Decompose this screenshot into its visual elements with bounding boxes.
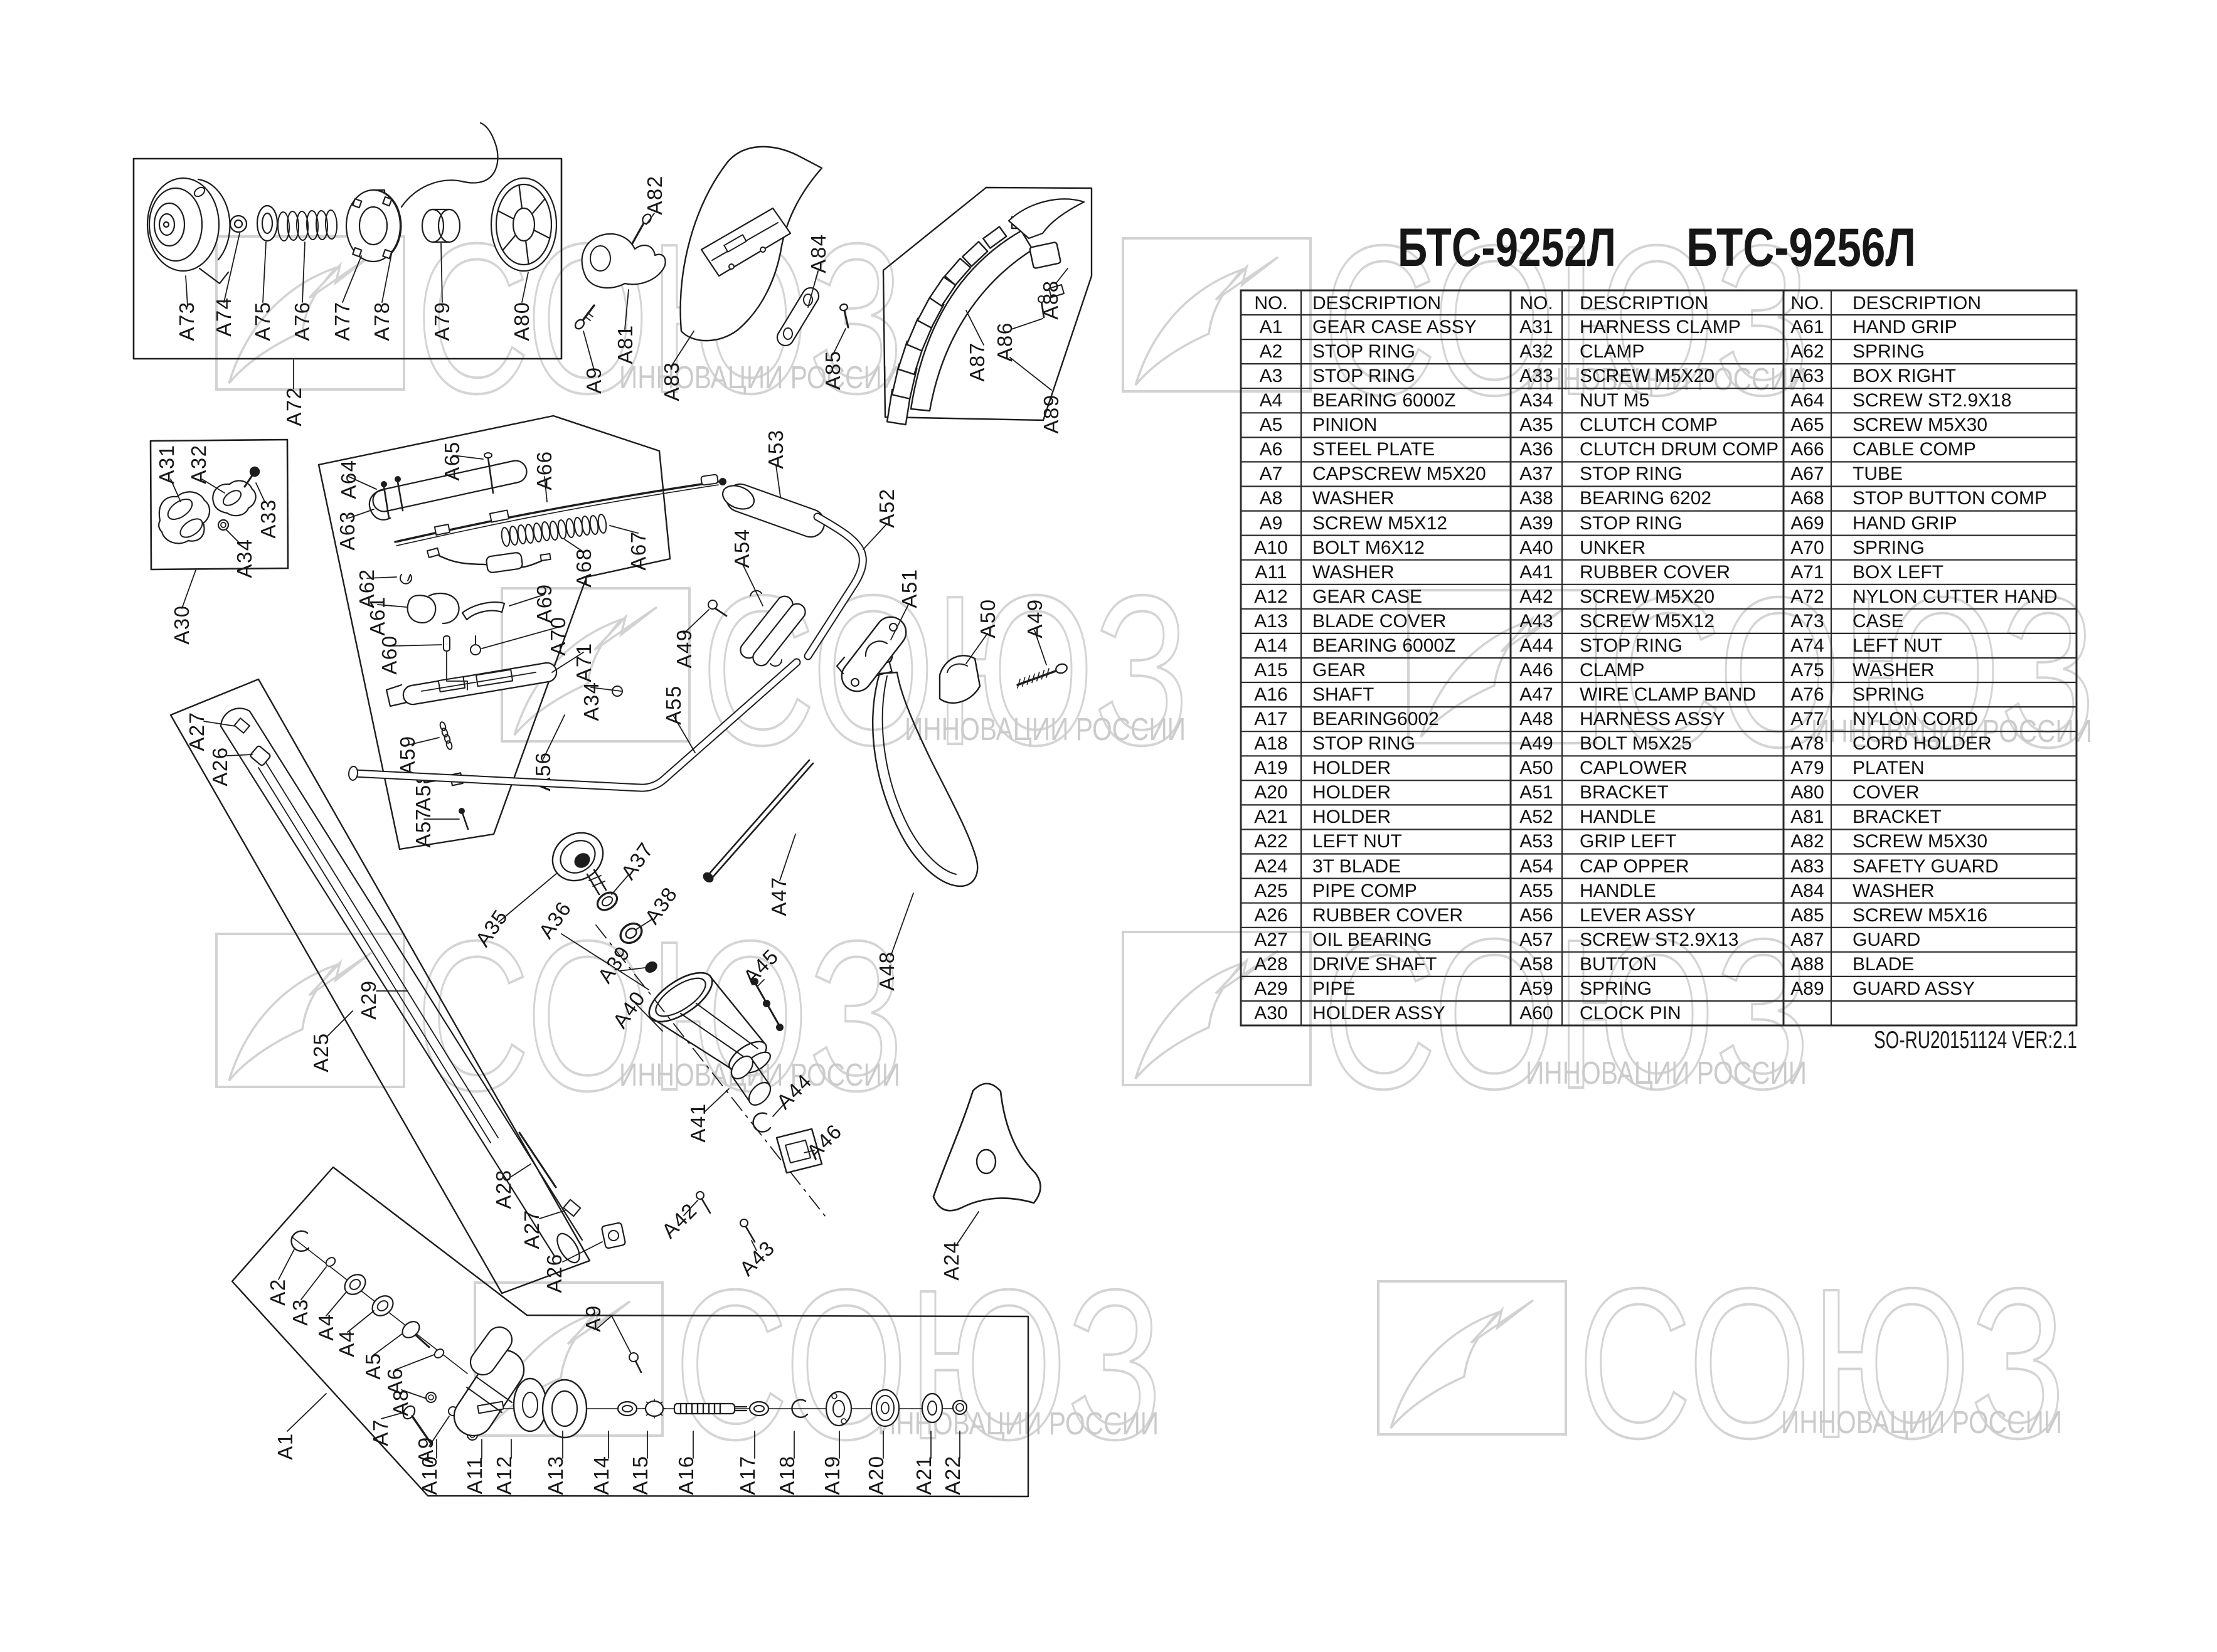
svg-text:A50: A50 xyxy=(1519,758,1553,778)
svg-text:CLAMP: CLAMP xyxy=(1580,660,1644,680)
svg-text:A81: A81 xyxy=(1790,807,1824,827)
svg-text:A27: A27 xyxy=(185,711,208,751)
svg-text:A50: A50 xyxy=(976,598,999,638)
svg-text:GEAR CASE ASSY: GEAR CASE ASSY xyxy=(1312,317,1477,337)
svg-text:BOLT M6X12: BOLT M6X12 xyxy=(1312,537,1425,558)
svg-text:STOP RING: STOP RING xyxy=(1580,513,1683,534)
svg-text:A10: A10 xyxy=(1254,537,1287,558)
svg-text:A2: A2 xyxy=(266,1278,289,1305)
svg-text:RUBBER COVER: RUBBER COVER xyxy=(1580,562,1730,583)
svg-text:A22: A22 xyxy=(941,1455,964,1495)
svg-text:A42: A42 xyxy=(657,1198,701,1242)
svg-text:A71: A71 xyxy=(572,642,595,682)
svg-text:A24: A24 xyxy=(1254,856,1287,877)
svg-text:A72: A72 xyxy=(282,386,306,426)
svg-text:A37: A37 xyxy=(616,838,658,884)
svg-text:A14: A14 xyxy=(1254,635,1287,656)
svg-text:NUT M5: NUT M5 xyxy=(1580,390,1649,411)
svg-text:A64: A64 xyxy=(337,459,360,499)
svg-text:A41: A41 xyxy=(1519,562,1553,583)
svg-text:A40: A40 xyxy=(1519,537,1553,558)
svg-text:A4: A4 xyxy=(335,1330,358,1357)
svg-text:A19: A19 xyxy=(821,1455,844,1495)
svg-text:A7: A7 xyxy=(369,1419,392,1446)
svg-text:A15: A15 xyxy=(1254,660,1287,680)
svg-text:A9: A9 xyxy=(1260,513,1283,534)
svg-text:A61: A61 xyxy=(1790,317,1824,337)
svg-text:CABLE COMP: CABLE COMP xyxy=(1853,439,1976,460)
svg-text:БТС-9252Л: БТС-9252Л xyxy=(1398,218,1616,278)
svg-text:A9: A9 xyxy=(582,1305,605,1332)
svg-text:A78: A78 xyxy=(370,301,393,341)
svg-text:GUARD ASSY: GUARD ASSY xyxy=(1853,978,1975,999)
svg-text:STOP RING: STOP RING xyxy=(1312,341,1415,362)
svg-text:A55: A55 xyxy=(662,685,685,724)
svg-text:CLAMP: CLAMP xyxy=(1580,341,1644,362)
svg-text:SCREW M5X20: SCREW M5X20 xyxy=(1580,586,1715,607)
svg-text:A36: A36 xyxy=(1519,439,1553,460)
svg-text:A34: A34 xyxy=(233,538,256,578)
svg-text:A48: A48 xyxy=(875,951,898,990)
svg-text:A27: A27 xyxy=(1254,929,1287,950)
svg-text:A66: A66 xyxy=(533,450,556,490)
svg-text:A16: A16 xyxy=(674,1455,698,1495)
svg-text:A30: A30 xyxy=(170,605,193,644)
svg-text:A53: A53 xyxy=(1519,831,1553,852)
svg-text:A65: A65 xyxy=(440,441,464,480)
svg-text:BRACKET: BRACKET xyxy=(1580,782,1669,803)
svg-text:A62: A62 xyxy=(1790,341,1824,362)
svg-text:STOP RING: STOP RING xyxy=(1312,733,1415,754)
svg-text:A3: A3 xyxy=(1260,366,1283,386)
svg-text:A75: A75 xyxy=(1790,660,1824,680)
svg-text:STEEL PLATE: STEEL PLATE xyxy=(1312,439,1435,460)
svg-text:A69: A69 xyxy=(1790,513,1824,534)
svg-text:A7: A7 xyxy=(1260,463,1283,484)
svg-text:BOX RIGHT: BOX RIGHT xyxy=(1853,366,1956,386)
svg-text:BOLT M5X25: BOLT M5X25 xyxy=(1580,733,1692,754)
svg-text:SPRING: SPRING xyxy=(1853,537,1925,558)
svg-text:A86: A86 xyxy=(993,322,1016,361)
svg-text:TUBE: TUBE xyxy=(1853,463,1903,484)
svg-text:A63: A63 xyxy=(336,511,359,550)
svg-text:A9: A9 xyxy=(414,1436,437,1463)
svg-text:A66: A66 xyxy=(1790,439,1824,460)
svg-text:BLADE: BLADE xyxy=(1853,954,1914,975)
svg-text:A52: A52 xyxy=(1519,807,1553,827)
svg-text:A52: A52 xyxy=(875,488,898,527)
svg-text:A11: A11 xyxy=(463,1456,486,1495)
svg-text:GEAR: GEAR xyxy=(1312,660,1366,680)
svg-text:A58: A58 xyxy=(1519,954,1553,975)
svg-text:SO-RU20151124 VER:2.1: SO-RU20151124 VER:2.1 xyxy=(1874,1027,2077,1054)
svg-text:A5: A5 xyxy=(1260,415,1283,435)
svg-text:OIL BEARING: OIL BEARING xyxy=(1312,929,1432,950)
svg-text:A32: A32 xyxy=(187,444,210,484)
svg-text:A16: A16 xyxy=(1254,684,1287,705)
svg-text:A13: A13 xyxy=(1254,611,1287,632)
svg-text:SCREW M5X30: SCREW M5X30 xyxy=(1853,415,1987,435)
svg-text:WASHER: WASHER xyxy=(1853,660,1935,680)
svg-text:A18: A18 xyxy=(1254,733,1287,754)
svg-text:A88: A88 xyxy=(1790,954,1824,975)
svg-text:HANDLE: HANDLE xyxy=(1580,807,1656,827)
svg-text:STOP RING: STOP RING xyxy=(1312,366,1415,386)
svg-text:A51: A51 xyxy=(1519,782,1553,803)
svg-text:NYLON CORD: NYLON CORD xyxy=(1853,709,1978,729)
svg-text:BEARING6002: BEARING6002 xyxy=(1312,709,1439,729)
svg-text:BOX LEFT: BOX LEFT xyxy=(1853,562,1943,583)
svg-text:A26: A26 xyxy=(208,746,231,786)
svg-text:A21: A21 xyxy=(912,1455,935,1495)
svg-text:A6: A6 xyxy=(1260,439,1283,460)
svg-text:A84: A84 xyxy=(807,233,830,273)
svg-text:A59: A59 xyxy=(396,735,419,775)
svg-text:A78: A78 xyxy=(1790,733,1824,754)
svg-text:HARNESS ASSY: HARNESS ASSY xyxy=(1580,709,1725,729)
svg-text:DESCRIPTION: DESCRIPTION xyxy=(1312,293,1441,314)
svg-text:A51: A51 xyxy=(898,568,921,608)
svg-text:A17: A17 xyxy=(736,1455,759,1495)
svg-text:CAPLOWER: CAPLOWER xyxy=(1580,758,1688,778)
svg-text:A55: A55 xyxy=(1519,881,1553,901)
svg-text:NYLON CUTTER HAND: NYLON CUTTER HAND xyxy=(1853,586,2058,607)
svg-text:WASHER: WASHER xyxy=(1312,562,1395,583)
svg-text:A33: A33 xyxy=(1519,366,1553,386)
svg-text:A35: A35 xyxy=(1519,415,1553,435)
svg-text:CAPSCREW M5X20: CAPSCREW M5X20 xyxy=(1312,463,1486,484)
svg-text:A8: A8 xyxy=(1260,488,1283,509)
svg-text:HOLDER: HOLDER xyxy=(1312,782,1391,803)
svg-text:A88: A88 xyxy=(1039,280,1062,319)
svg-text:A80: A80 xyxy=(1790,782,1824,803)
svg-text:A54: A54 xyxy=(730,528,753,568)
svg-text:HAND GRIP: HAND GRIP xyxy=(1853,317,1957,337)
svg-text:WIRE CLAMP BAND: WIRE CLAMP BAND xyxy=(1580,684,1756,705)
svg-text:BUTTON: BUTTON xyxy=(1580,954,1657,975)
svg-text:SPRING: SPRING xyxy=(1853,341,1925,362)
svg-text:A70: A70 xyxy=(546,616,570,655)
svg-text:A29: A29 xyxy=(1254,978,1287,999)
svg-text:A25: A25 xyxy=(1254,881,1287,901)
svg-text:A22: A22 xyxy=(1254,831,1287,852)
svg-text:A19: A19 xyxy=(1254,758,1287,778)
svg-text:A12: A12 xyxy=(492,1455,516,1495)
svg-text:A39: A39 xyxy=(1519,513,1553,534)
svg-text:GEAR CASE: GEAR CASE xyxy=(1312,586,1422,607)
svg-text:A24: A24 xyxy=(940,1241,963,1280)
svg-text:A17: A17 xyxy=(1254,709,1287,729)
svg-text:A81: A81 xyxy=(614,324,637,364)
svg-text:SHAFT: SHAFT xyxy=(1312,684,1374,705)
svg-text:SPRING: SPRING xyxy=(1853,684,1925,705)
svg-text:A42: A42 xyxy=(1519,586,1553,607)
svg-text:A87: A87 xyxy=(965,342,989,381)
svg-text:A64: A64 xyxy=(1790,390,1824,411)
svg-text:A34: A34 xyxy=(1519,390,1553,411)
svg-text:BRACKET: BRACKET xyxy=(1853,807,1942,827)
svg-text:CLUTCH DRUM COMP: CLUTCH DRUM COMP xyxy=(1580,439,1778,460)
svg-text:A74: A74 xyxy=(1790,635,1824,656)
svg-text:CLOCK PIN: CLOCK PIN xyxy=(1580,1003,1681,1024)
svg-text:A3: A3 xyxy=(289,1298,312,1325)
svg-text:LEVER ASSY: LEVER ASSY xyxy=(1580,905,1696,926)
svg-text:CLUTCH COMP: CLUTCH COMP xyxy=(1580,415,1718,435)
svg-text:A89: A89 xyxy=(1790,978,1824,999)
svg-text:HANDLE: HANDLE xyxy=(1580,881,1656,901)
svg-text:A65: A65 xyxy=(1790,415,1824,435)
svg-text:A68: A68 xyxy=(572,548,595,587)
svg-text:A1: A1 xyxy=(274,1432,297,1459)
svg-text:HOLDER: HOLDER xyxy=(1312,807,1391,827)
svg-text:A31: A31 xyxy=(1519,317,1553,337)
svg-text:A85: A85 xyxy=(821,350,844,389)
svg-text:A31: A31 xyxy=(155,444,178,484)
svg-text:DESCRIPTION: DESCRIPTION xyxy=(1853,293,1981,314)
svg-text:HOLDER ASSY: HOLDER ASSY xyxy=(1312,1003,1445,1024)
svg-text:A70: A70 xyxy=(1790,537,1824,558)
svg-text:A8: A8 xyxy=(389,1389,412,1416)
svg-text:A67: A67 xyxy=(1790,463,1824,484)
svg-text:A9: A9 xyxy=(582,366,605,393)
svg-text:A77: A77 xyxy=(1790,709,1824,729)
svg-text:A68: A68 xyxy=(1790,488,1824,509)
svg-text:HARNESS CLAMP: HARNESS CLAMP xyxy=(1580,317,1741,337)
svg-text:A60: A60 xyxy=(378,635,401,674)
svg-text:A49: A49 xyxy=(1519,733,1553,754)
svg-text:A76: A76 xyxy=(1790,684,1824,705)
svg-text:A60: A60 xyxy=(1519,1003,1553,1024)
svg-text:WASHER: WASHER xyxy=(1312,488,1395,509)
svg-text:BEARING 6000Z: BEARING 6000Z xyxy=(1312,390,1455,411)
svg-text:A73: A73 xyxy=(175,301,198,341)
svg-text:A33: A33 xyxy=(257,499,280,538)
svg-text:STOP BUTTON COMP: STOP BUTTON COMP xyxy=(1853,488,2047,509)
svg-text:RUBBER COVER: RUBBER COVER xyxy=(1312,905,1463,926)
svg-text:A75: A75 xyxy=(251,301,274,341)
svg-text:SCREW ST2.9X18: SCREW ST2.9X18 xyxy=(1853,390,2011,411)
svg-text:GRIP LEFT: GRIP LEFT xyxy=(1580,831,1676,852)
svg-text:A84: A84 xyxy=(1790,881,1824,901)
svg-text:SCREW M5X12: SCREW M5X12 xyxy=(1580,611,1715,632)
svg-text:A54: A54 xyxy=(1519,856,1553,877)
svg-text:A47: A47 xyxy=(767,876,790,916)
svg-text:A18: A18 xyxy=(775,1455,799,1495)
svg-text:WASHER: WASHER xyxy=(1853,881,1935,901)
svg-text:BEARING 6000Z: BEARING 6000Z xyxy=(1312,635,1455,656)
svg-text:A2: A2 xyxy=(1260,341,1283,362)
svg-text:A14: A14 xyxy=(590,1455,613,1495)
svg-text:SAFETY GUARD: SAFETY GUARD xyxy=(1853,856,1999,877)
svg-text:A5: A5 xyxy=(361,1352,385,1379)
svg-text:LEFT NUT: LEFT NUT xyxy=(1312,831,1402,852)
svg-text:A20: A20 xyxy=(864,1455,888,1495)
svg-text:A11: A11 xyxy=(1255,562,1287,583)
svg-text:A47: A47 xyxy=(1519,684,1553,705)
svg-text:NO.: NO. xyxy=(1254,293,1287,314)
svg-text:A27: A27 xyxy=(520,1209,543,1249)
svg-text:A13: A13 xyxy=(544,1455,567,1495)
svg-text:SCREW M5X20: SCREW M5X20 xyxy=(1580,366,1715,386)
svg-text:PIPE COMP: PIPE COMP xyxy=(1312,881,1417,901)
svg-text:A28: A28 xyxy=(492,1169,515,1209)
svg-text:A49: A49 xyxy=(1023,598,1046,638)
svg-text:A89: A89 xyxy=(1039,394,1063,433)
svg-text:A29: A29 xyxy=(357,980,380,1019)
svg-text:A30: A30 xyxy=(1254,1003,1287,1024)
svg-text:LEFT NUT: LEFT NUT xyxy=(1853,635,1942,656)
svg-text:SCREW M5X16: SCREW M5X16 xyxy=(1853,905,1987,926)
svg-text:STOP RING: STOP RING xyxy=(1580,463,1683,484)
svg-text:A32: A32 xyxy=(1519,341,1553,362)
svg-text:A48: A48 xyxy=(1519,709,1553,729)
svg-text:NO.: NO. xyxy=(1519,293,1553,314)
svg-text:CORD HOLDER: CORD HOLDER xyxy=(1853,733,1992,754)
svg-text:A46: A46 xyxy=(1519,660,1553,680)
svg-text:A49: A49 xyxy=(673,628,696,668)
svg-text:A82: A82 xyxy=(1790,831,1824,852)
svg-text:BLADE COVER: BLADE COVER xyxy=(1312,611,1446,632)
svg-text:A37: A37 xyxy=(1519,463,1553,484)
svg-text:A79: A79 xyxy=(430,301,454,341)
svg-text:A38: A38 xyxy=(1519,488,1553,509)
svg-text:PINION: PINION xyxy=(1312,415,1377,435)
svg-text:A83: A83 xyxy=(660,361,683,401)
svg-text:A21: A21 xyxy=(1254,807,1287,827)
svg-text:A63: A63 xyxy=(1790,366,1824,386)
svg-text:A43: A43 xyxy=(1519,611,1553,632)
svg-text:A4: A4 xyxy=(314,1313,338,1340)
svg-text:A87: A87 xyxy=(1790,929,1824,950)
svg-text:A72: A72 xyxy=(1790,586,1824,607)
svg-text:A67: A67 xyxy=(627,531,650,570)
svg-text:BEARING 6202: BEARING 6202 xyxy=(1580,488,1711,509)
svg-text:SCREW M5X30: SCREW M5X30 xyxy=(1853,831,1987,852)
svg-text:NO.: NO. xyxy=(1790,293,1824,314)
svg-text:БТС-9256Л: БТС-9256Л xyxy=(1686,218,1916,278)
svg-text:A57: A57 xyxy=(412,808,435,847)
svg-text:PIPE: PIPE xyxy=(1312,978,1355,999)
svg-text:A53: A53 xyxy=(764,429,787,469)
svg-text:A25: A25 xyxy=(309,1032,332,1072)
svg-text:SCREW ST2.9X13: SCREW ST2.9X13 xyxy=(1580,929,1738,950)
svg-text:A4: A4 xyxy=(1260,390,1283,411)
svg-text:A74: A74 xyxy=(212,297,235,336)
svg-text:A44: A44 xyxy=(1519,635,1553,656)
svg-text:COVER: COVER xyxy=(1853,782,1920,803)
svg-text:UNKER: UNKER xyxy=(1580,537,1645,558)
svg-text:A77: A77 xyxy=(331,301,354,341)
svg-text:SPRING: SPRING xyxy=(1580,978,1652,999)
svg-text:A76: A76 xyxy=(290,301,314,341)
svg-text:A79: A79 xyxy=(1790,758,1824,778)
svg-text:A15: A15 xyxy=(629,1455,652,1495)
svg-text:A34: A34 xyxy=(580,681,603,721)
svg-text:A61: A61 xyxy=(366,596,389,635)
svg-text:A26: A26 xyxy=(543,1253,566,1293)
svg-text:A57: A57 xyxy=(1519,929,1553,950)
svg-text:CAP OPPER: CAP OPPER xyxy=(1580,856,1689,877)
svg-text:HAND GRIP: HAND GRIP xyxy=(1853,513,1957,534)
svg-text:DESCRIPTION: DESCRIPTION xyxy=(1580,293,1708,314)
svg-text:A12: A12 xyxy=(1254,586,1287,607)
svg-text:A26: A26 xyxy=(1254,905,1287,926)
svg-text:A82: A82 xyxy=(643,175,666,214)
svg-text:SCREW M5X12: SCREW M5X12 xyxy=(1312,513,1447,534)
svg-text:HOLDER: HOLDER xyxy=(1312,758,1391,778)
svg-text:A85: A85 xyxy=(1790,905,1824,926)
svg-text:A20: A20 xyxy=(1254,782,1287,803)
svg-text:DRIVE SHAFT: DRIVE SHAFT xyxy=(1312,954,1437,975)
svg-text:A80: A80 xyxy=(510,301,533,341)
svg-text:GUARD: GUARD xyxy=(1853,929,1920,950)
svg-text:STOP RING: STOP RING xyxy=(1580,635,1683,656)
svg-text:A1: A1 xyxy=(1260,317,1283,337)
svg-text:CASE: CASE xyxy=(1853,611,1904,632)
svg-text:3T BLADE: 3T BLADE xyxy=(1312,856,1401,877)
svg-text:PLATEN: PLATEN xyxy=(1853,758,1924,778)
svg-text:A73: A73 xyxy=(1790,611,1824,632)
svg-text:A71: A71 xyxy=(1790,562,1824,583)
svg-text:A56: A56 xyxy=(1519,905,1553,926)
svg-text:A41: A41 xyxy=(686,1103,710,1142)
svg-text:A59: A59 xyxy=(1519,978,1553,999)
svg-text:A28: A28 xyxy=(1254,954,1287,975)
svg-text:A83: A83 xyxy=(1790,856,1824,877)
